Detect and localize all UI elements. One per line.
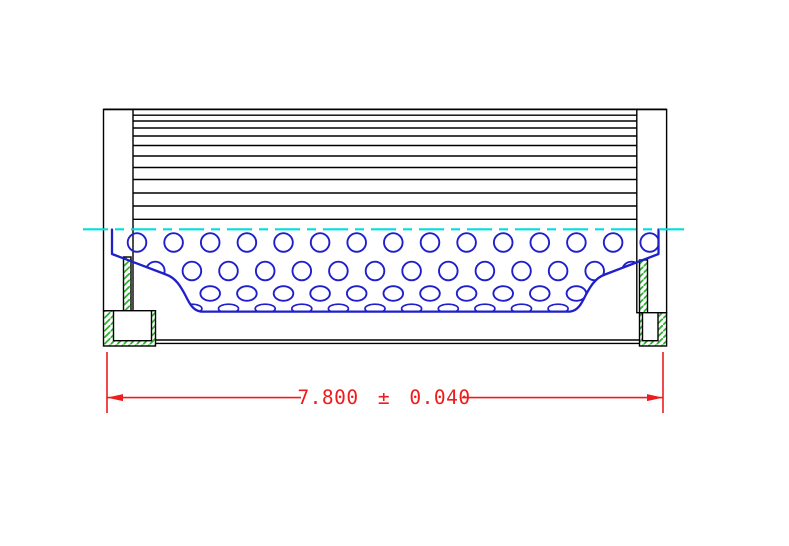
right-end-block-bore xyxy=(643,313,659,341)
right-arrowhead-icon xyxy=(647,394,663,401)
pleat-lines xyxy=(133,115,637,219)
dimension-label: 7.800 ± 0.040 xyxy=(297,386,470,409)
length-dimension: 7.800 ± 0.040 xyxy=(107,352,663,413)
bottom-outer-edge xyxy=(156,340,640,343)
drawing-canvas: 7.800 ± 0.040 xyxy=(0,0,789,546)
filter-element-drawing: 7.800 ± 0.040 xyxy=(0,0,789,546)
core-tube-outline xyxy=(112,230,659,312)
left-arrowhead-icon xyxy=(107,394,123,401)
pleated-media xyxy=(104,109,667,219)
left-end-block-bore xyxy=(114,311,152,341)
core-hole-pattern xyxy=(109,233,678,313)
left-cap-seal-section xyxy=(124,257,132,311)
right-cap-seal-section xyxy=(640,260,648,313)
perforated-core-tube xyxy=(109,230,678,314)
right-end-cap xyxy=(637,109,667,346)
